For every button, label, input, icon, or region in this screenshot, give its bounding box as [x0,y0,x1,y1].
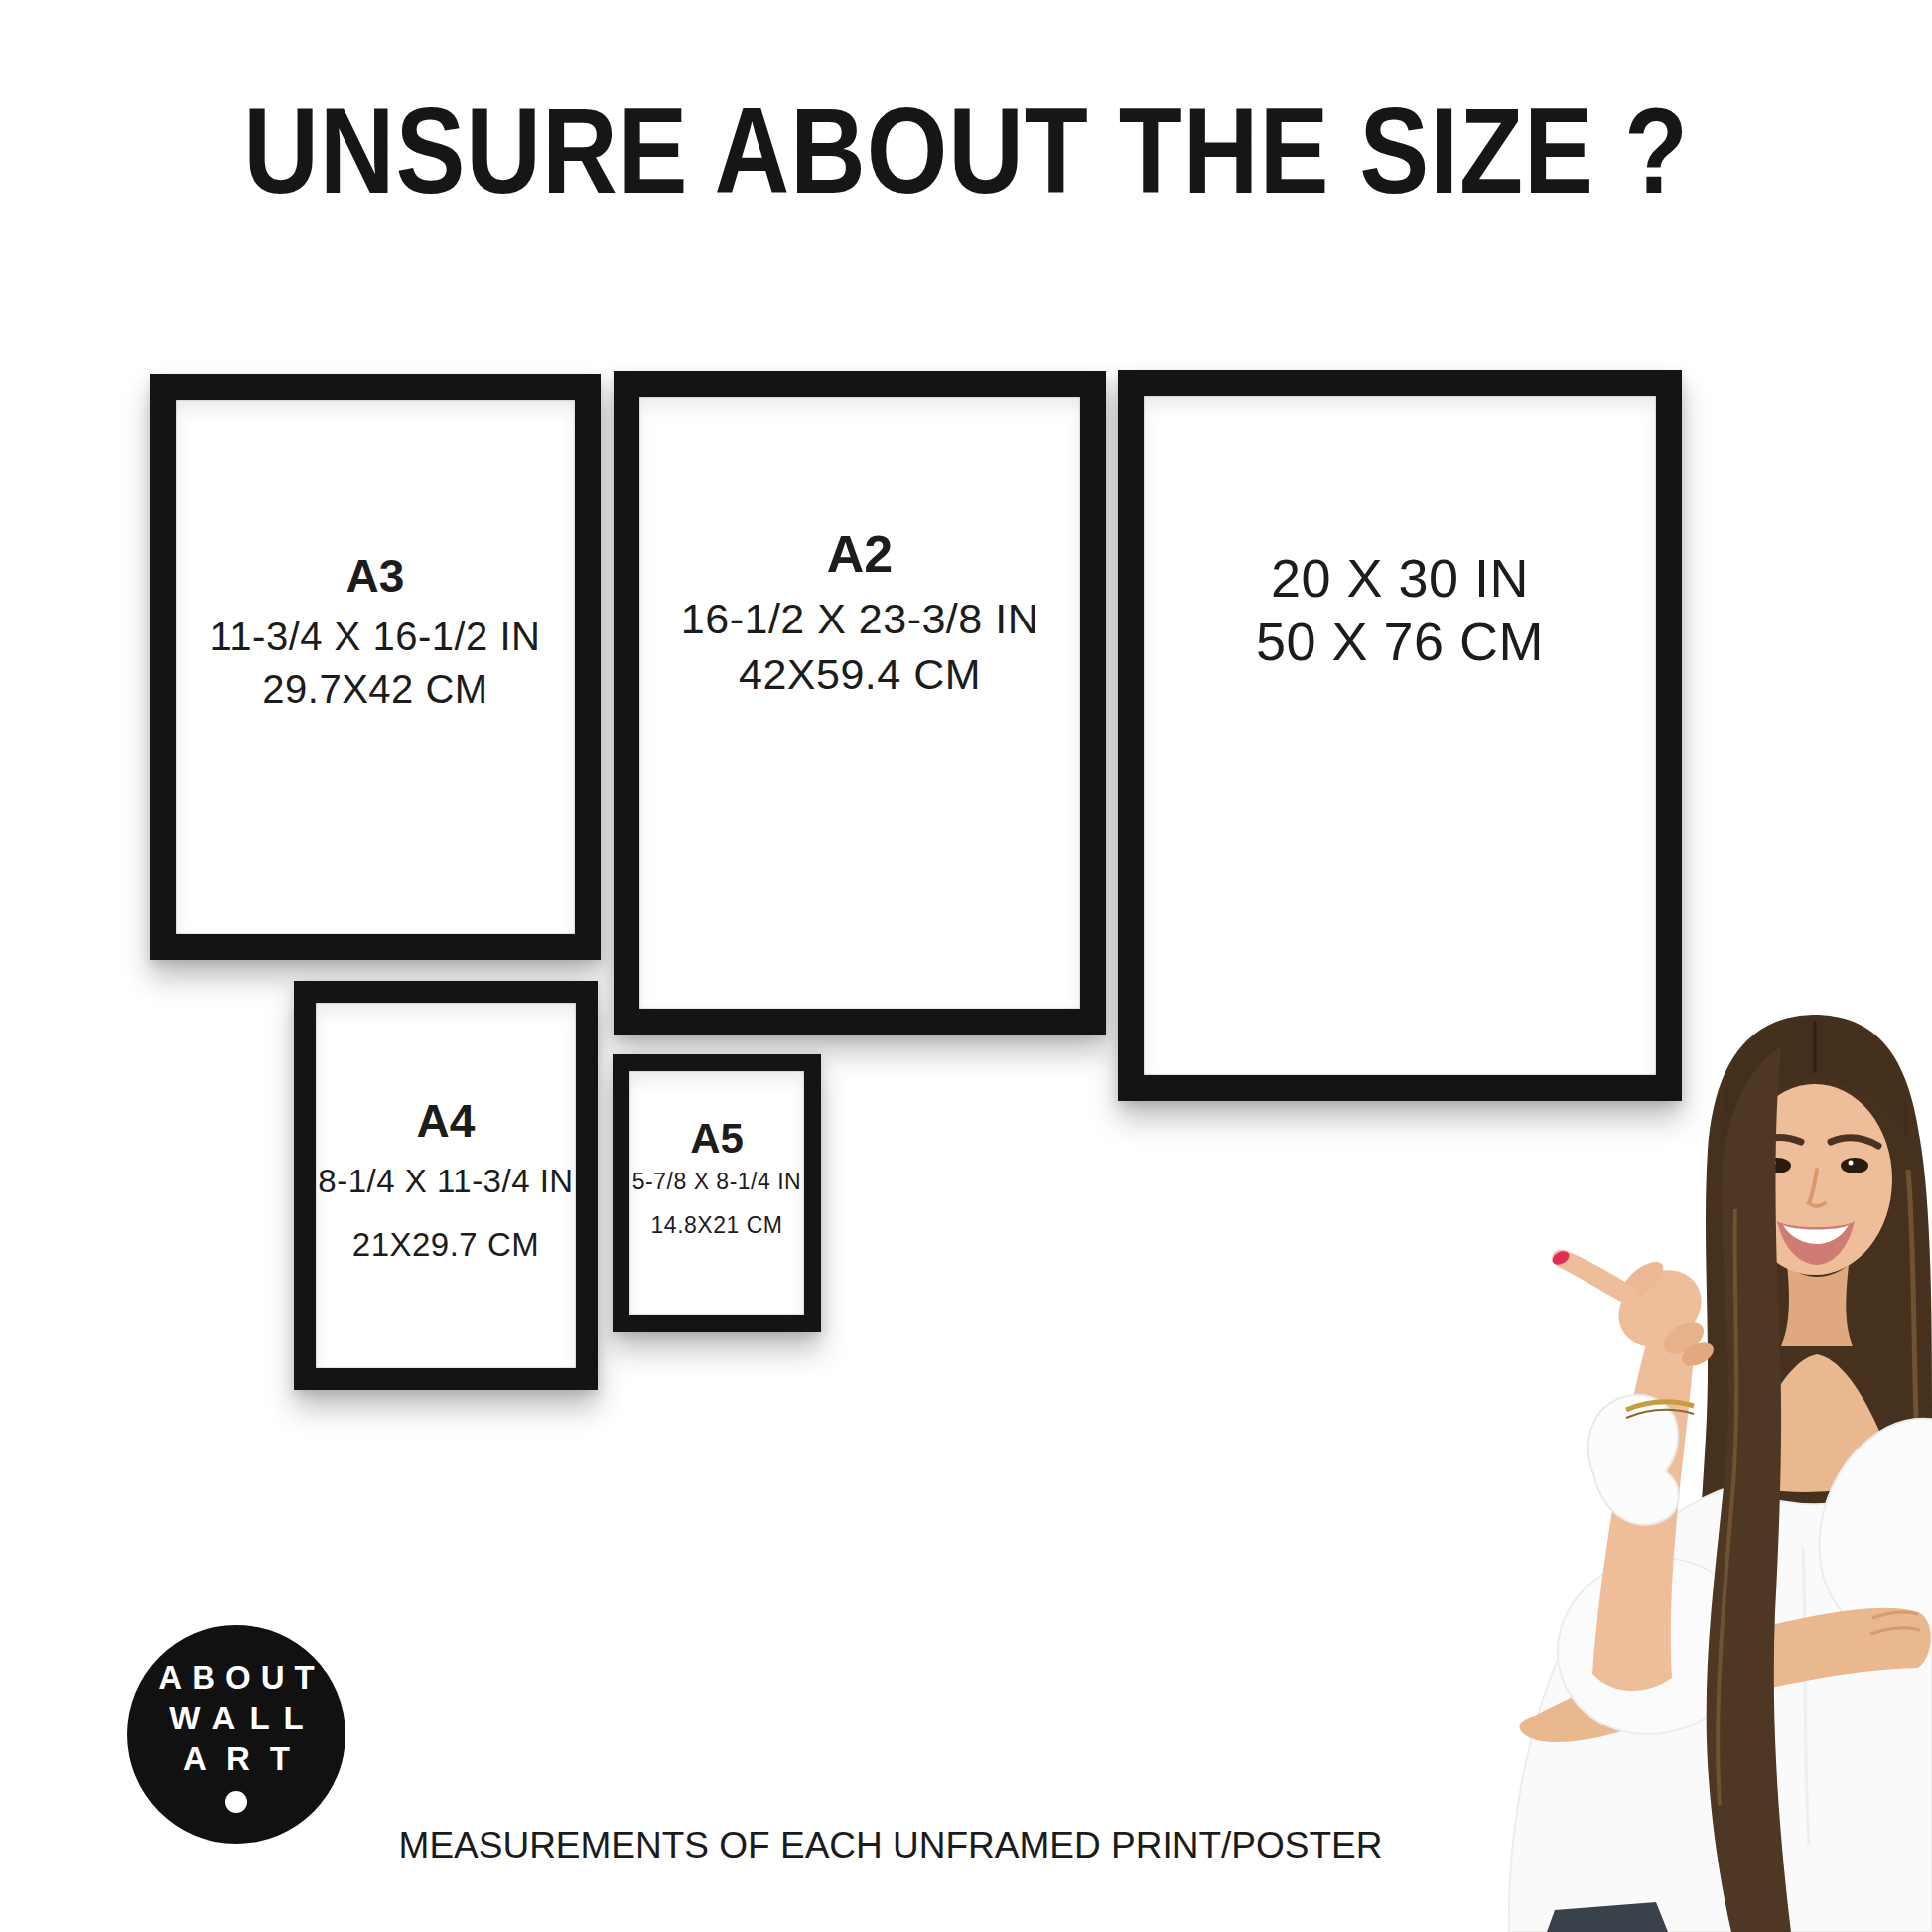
right-eye [1841,1158,1868,1173]
frame-a5-size-label: A5 [629,1115,804,1163]
logo-line-wall: WALL [155,1698,317,1738]
frame-a3-inches: 11-3/4 X 16-1/2 IN [176,611,575,663]
frame-a4-cm: 21X29.7 CM [316,1225,576,1265]
brand-logo: ABOUT WALL ART [127,1625,345,1844]
frame-20x30: 20 X 30 IN 50 X 76 CM [1118,370,1682,1101]
footer-caption: MEASUREMENTS OF EACH UNFRAMED PRINT/POST… [399,1825,1383,1866]
frame-a3-cm: 29.7X42 CM [176,663,575,716]
frame-a2: A2 16-1/2 X 23-3/8 IN 42X59.4 CM [614,371,1106,1035]
woman-pointing-photo [1475,1011,1932,1932]
frame-a4-inches: 8-1/4 X 11-3/4 IN [316,1162,576,1201]
frame-a5: A5 5-7/8 X 8-1/4 IN 14.8X21 CM [613,1054,821,1332]
frame-a5-inches: 5-7/8 X 8-1/4 IN [629,1169,804,1196]
frame-a5-cm: 14.8X21 CM [629,1212,804,1240]
frame-a4: A4 8-1/4 X 11-3/4 IN 21X29.7 CM [294,981,598,1390]
page-title: UNSURE ABOUT THE SIZE ? [243,81,1689,220]
frame-20x30-paper: 20 X 30 IN 50 X 76 CM [1144,396,1656,1075]
frame-20x30-cm: 50 X 76 CM [1144,611,1656,674]
logo-line-art: ART [163,1738,310,1779]
neck [1781,1265,1853,1346]
frame-a3-size-label: A3 [176,549,575,603]
frame-a3-paper: A3 11-3/4 X 16-1/2 IN 29.7X42 CM [176,400,575,934]
frame-a2-size-label: A2 [639,524,1080,584]
logo-dot-icon [225,1791,247,1813]
frame-a2-cm: 42X59.4 CM [639,647,1080,703]
frame-a4-size-label: A4 [316,1094,576,1148]
frame-a2-inches: 16-1/2 X 23-3/8 IN [639,592,1080,647]
logo-line-about: ABOUT [148,1657,324,1698]
pointing-hand [1550,1248,1717,1370]
frame-20x30-inches: 20 X 30 IN [1144,547,1656,611]
frame-a2-paper: A2 16-1/2 X 23-3/8 IN 42X59.4 CM [639,397,1080,1009]
size-guide-poster: UNSURE ABOUT THE SIZE ? A3 11-3/4 X 16-1… [0,0,1932,1932]
frame-a3: A3 11-3/4 X 16-1/2 IN 29.7X42 CM [150,374,601,960]
frame-a4-paper: A4 8-1/4 X 11-3/4 IN 21X29.7 CM [316,1003,576,1368]
frame-a5-paper: A5 5-7/8 X 8-1/4 IN 14.8X21 CM [629,1071,804,1315]
